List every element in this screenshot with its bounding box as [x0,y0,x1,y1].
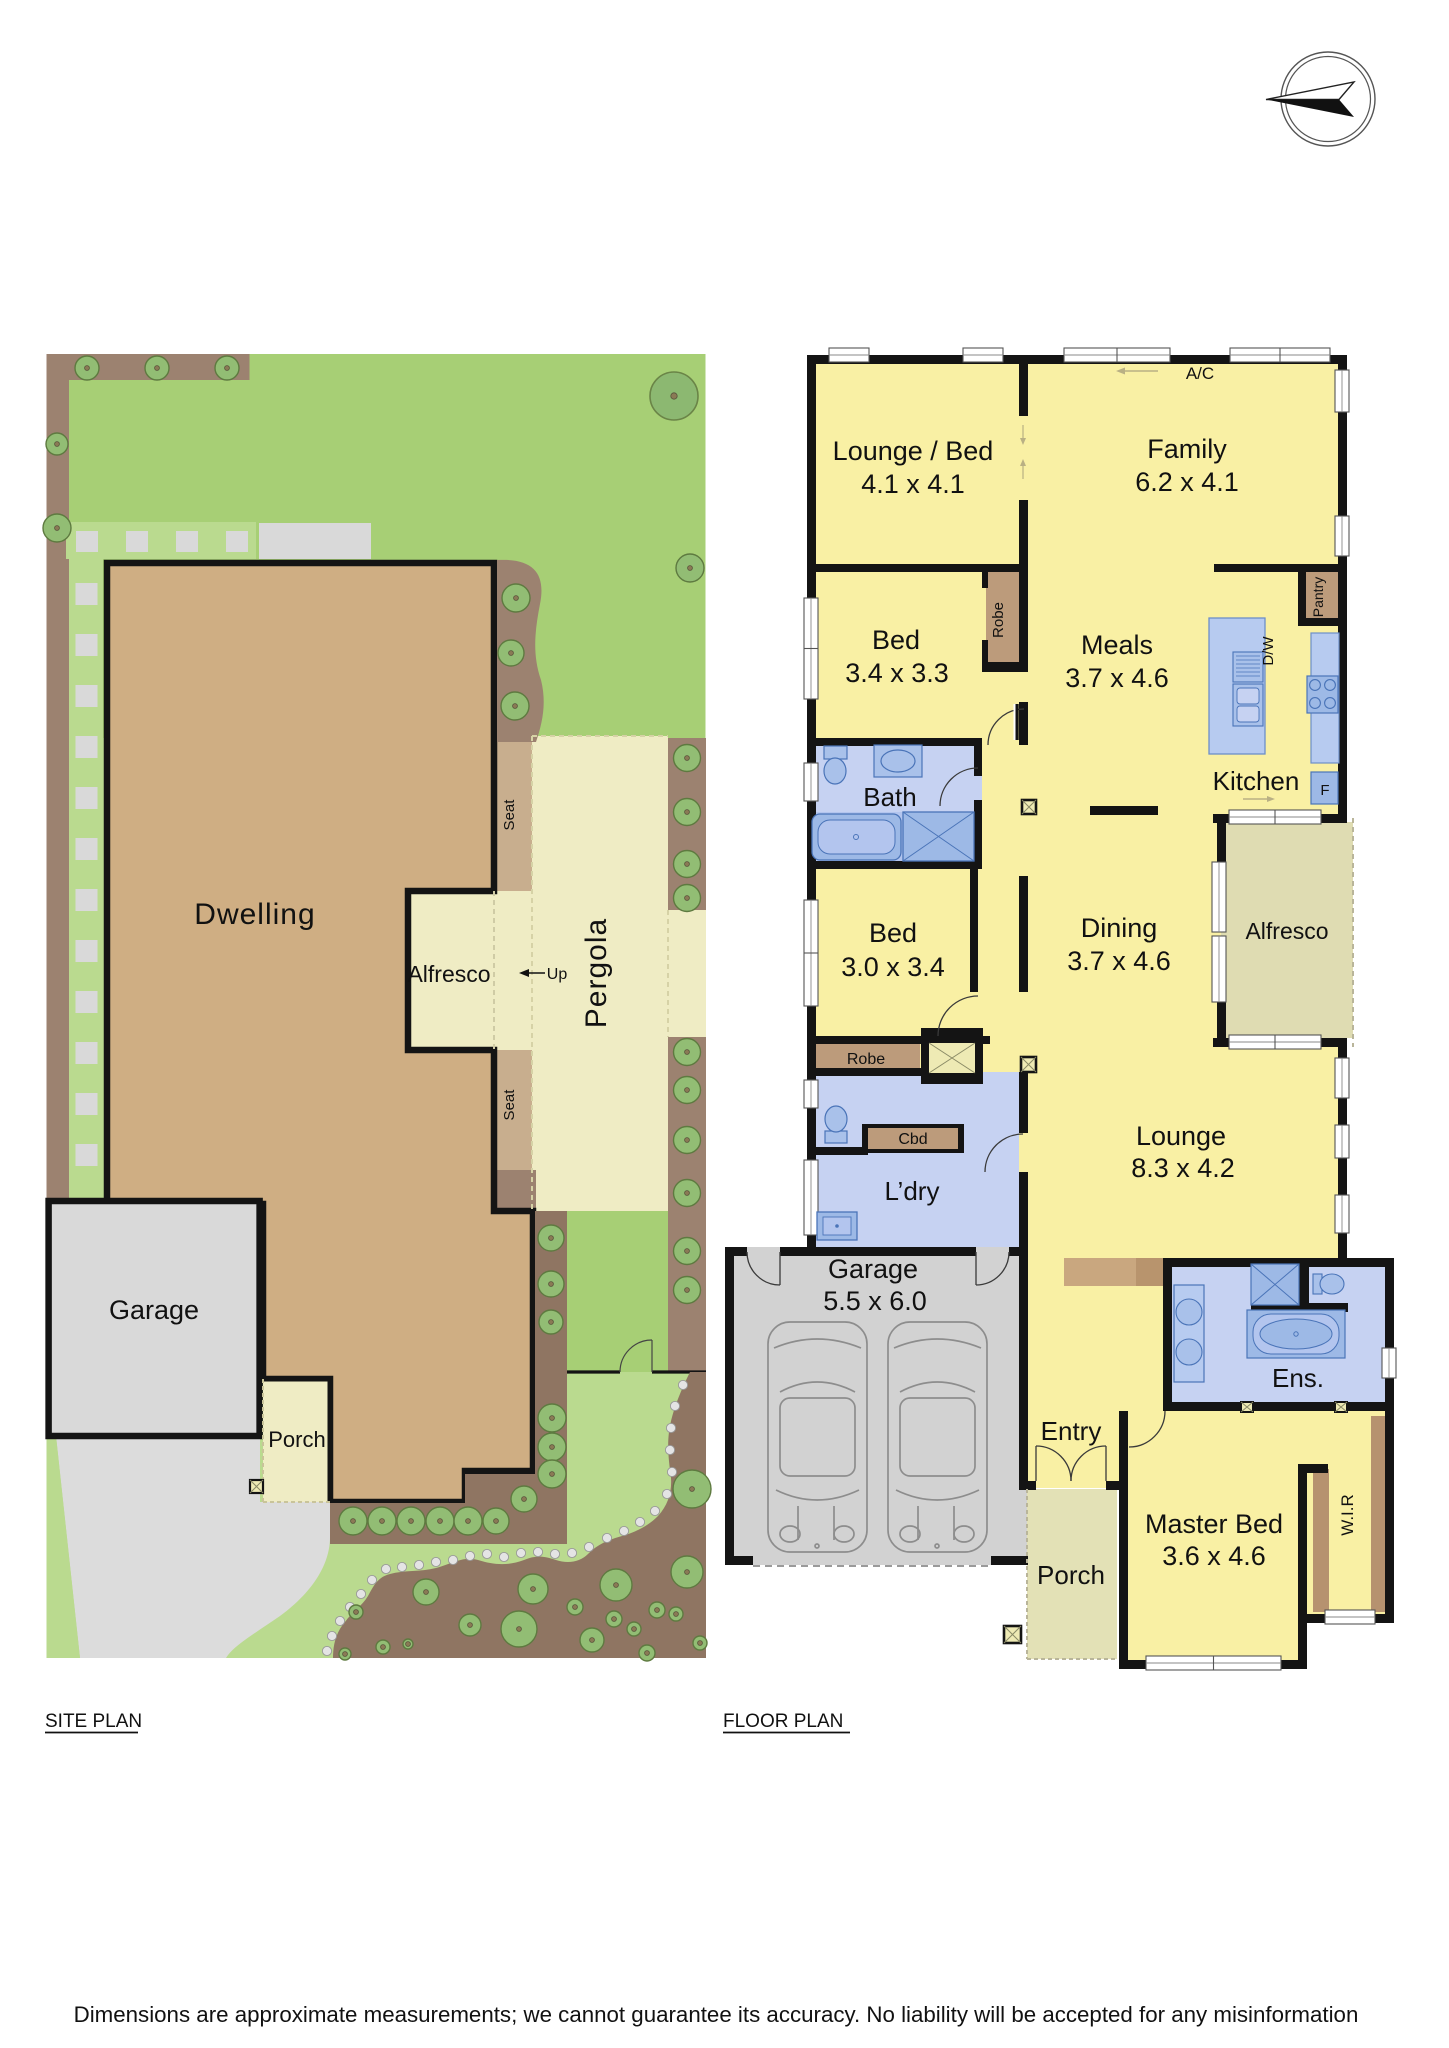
svg-text:Master Bed: Master Bed [1145,1509,1283,1539]
svg-text:FLOOR PLAN: FLOOR PLAN [723,1711,843,1732]
svg-text:3.7 x 4.6: 3.7 x 4.6 [1065,663,1169,693]
svg-text:Ens.: Ens. [1272,1363,1324,1393]
svg-text:Lounge: Lounge [1136,1121,1226,1151]
svg-text:Bed: Bed [872,625,920,655]
svg-text:Porch: Porch [1037,1560,1105,1590]
svg-text:Robe: Robe [847,1051,885,1068]
svg-text:Garage: Garage [828,1254,918,1284]
svg-text:Seat: Seat [501,1089,518,1121]
svg-text:Alfresco: Alfresco [407,961,490,987]
svg-text:Kitchen: Kitchen [1213,766,1300,796]
svg-text:Meals: Meals [1081,630,1153,660]
svg-text:3.4 x 3.3: 3.4 x 3.3 [845,658,949,688]
svg-text:6.2 x 4.1: 6.2 x 4.1 [1135,467,1239,497]
svg-text:W.I.R: W.I.R [1338,1494,1357,1536]
svg-text:L’dry: L’dry [885,1176,940,1206]
svg-text:Dimensions are approximate mea: Dimensions are approximate measurements;… [74,2002,1359,2027]
svg-text:Alfresco: Alfresco [1245,918,1328,944]
svg-text:Pantry: Pantry [1310,577,1326,617]
svg-text:F: F [1320,782,1329,799]
svg-text:3.6 x 4.6: 3.6 x 4.6 [1162,1541,1266,1571]
svg-text:Lounge / Bed: Lounge / Bed [833,436,994,466]
svg-text:Porch: Porch [268,1427,325,1452]
svg-text:Family: Family [1147,434,1227,464]
svg-text:4.1 x 4.1: 4.1 x 4.1 [861,469,965,499]
svg-text:Bath: Bath [863,782,917,812]
svg-text:Dining: Dining [1081,913,1158,943]
svg-text:Cbd: Cbd [898,1131,927,1148]
svg-text:3.0 x 3.4: 3.0 x 3.4 [841,952,945,982]
svg-text:Bed: Bed [869,918,917,948]
svg-text:Pergola: Pergola [580,918,613,1028]
svg-text:5.5 x 6.0: 5.5 x 6.0 [823,1286,927,1316]
svg-text:3.7 x 4.6: 3.7 x 4.6 [1067,946,1171,976]
svg-text:Seat: Seat [501,799,518,831]
svg-text:SITE PLAN: SITE PLAN [45,1711,142,1732]
svg-text:D/W: D/W [1260,636,1277,666]
svg-text:Garage: Garage [109,1295,199,1325]
svg-text:Entry: Entry [1041,1416,1102,1446]
svg-text:8.3 x 4.2: 8.3 x 4.2 [1131,1153,1235,1183]
svg-text:Up: Up [547,966,568,983]
svg-text:Robe: Robe [990,602,1007,638]
svg-text:A/C: A/C [1186,364,1214,383]
svg-text:Dwelling: Dwelling [194,898,315,931]
